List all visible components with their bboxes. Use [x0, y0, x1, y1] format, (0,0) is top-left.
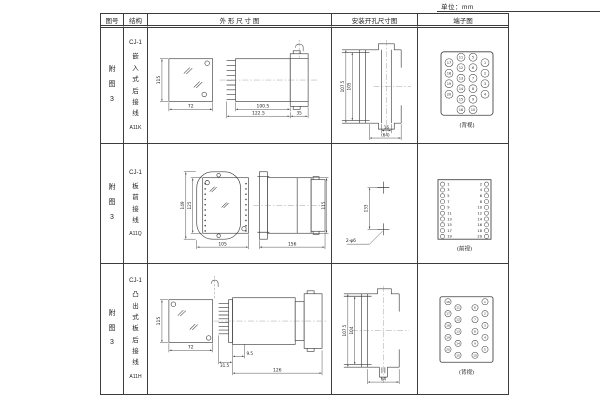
- datasheet-page: 单位：mm 图号 结构 外 形 尺 寸 图 安装开孔尺寸图 端子图 附图3 CJ…: [0, 0, 600, 400]
- svg-defs: [0, 0, 600, 400]
